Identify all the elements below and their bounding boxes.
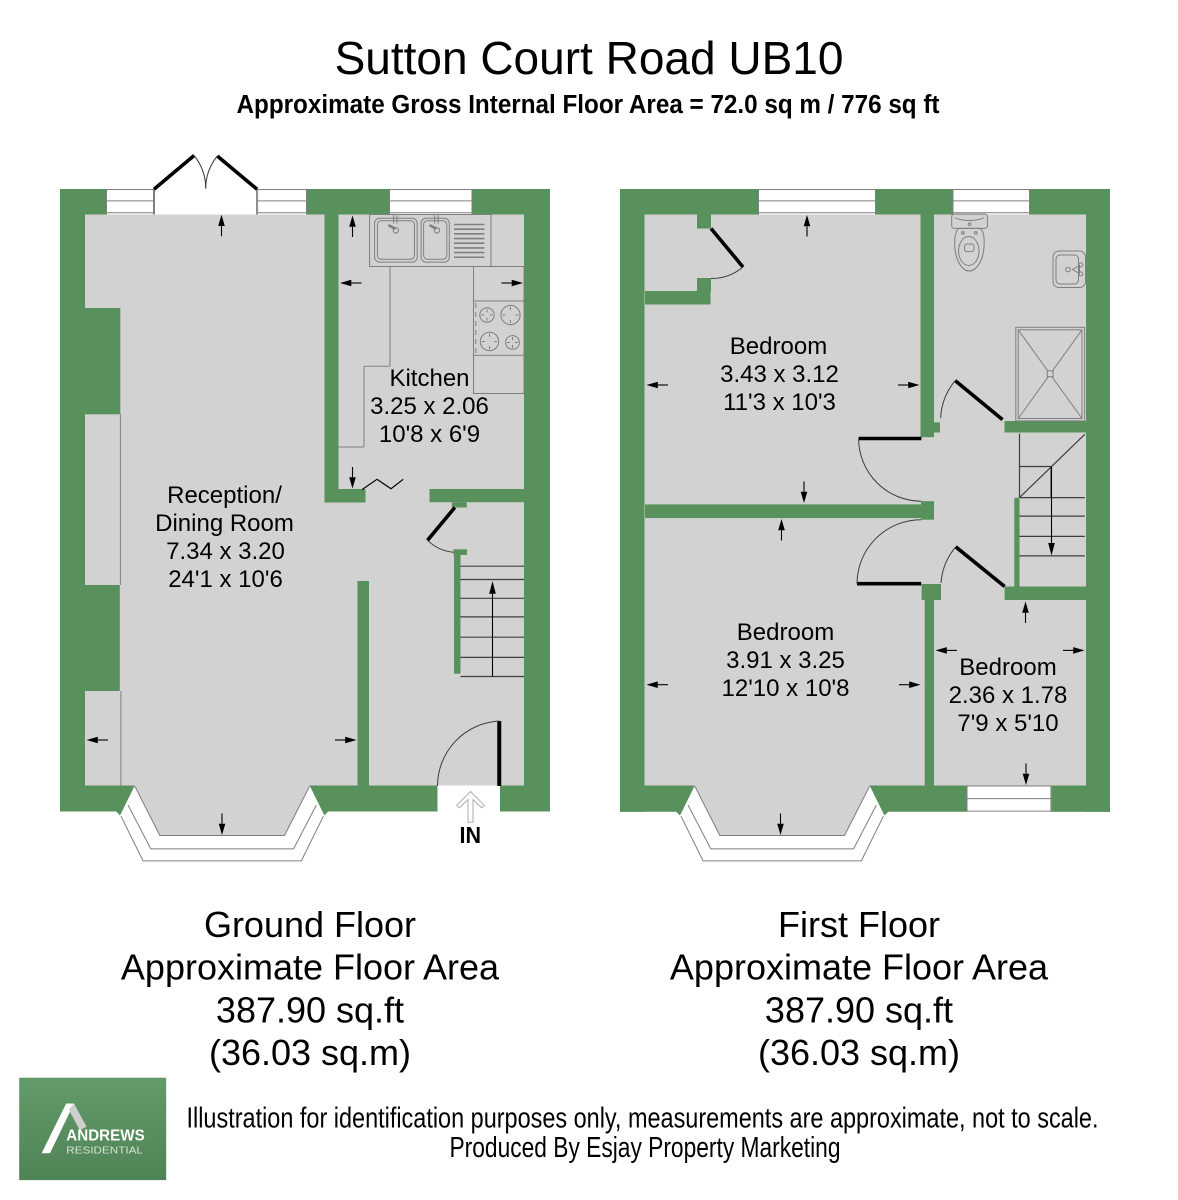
svg-text:(36.03 sq.m): (36.03 sq.m) [209, 1032, 411, 1073]
svg-text:IN: IN [460, 822, 482, 848]
svg-text:3.43 x 3.12: 3.43 x 3.12 [720, 361, 839, 388]
svg-text:Approximate Floor Area: Approximate Floor Area [670, 947, 1049, 988]
svg-text:Ground Floor: Ground Floor [204, 904, 416, 945]
svg-text:(36.03 sq.m): (36.03 sq.m) [758, 1032, 960, 1073]
svg-text:11'3 x 10'3: 11'3 x 10'3 [723, 389, 836, 416]
svg-text:Approximate Gross Internal Flo: Approximate Gross Internal Floor Area = … [237, 91, 940, 119]
svg-text:Reception/: Reception/ [167, 482, 282, 509]
svg-text:Dining Room: Dining Room [155, 510, 294, 537]
svg-text:24'1 x 10'6: 24'1 x 10'6 [168, 566, 283, 593]
svg-text:Approximate Floor Area: Approximate Floor Area [121, 947, 500, 988]
svg-text:Bedroom: Bedroom [737, 619, 834, 646]
svg-text:12'10 x 10'8: 12'10 x 10'8 [722, 675, 850, 702]
svg-text:Bedroom: Bedroom [959, 654, 1056, 681]
svg-text:7'9 x 5'10: 7'9 x 5'10 [957, 710, 1058, 737]
svg-text:3.91 x 3.25: 3.91 x 3.25 [726, 647, 845, 674]
svg-text:10'8 x 6'9: 10'8 x 6'9 [379, 421, 480, 448]
svg-text:3.25 x 2.06: 3.25 x 2.06 [370, 393, 489, 420]
svg-text:Produced By Esjay Property Mar: Produced By Esjay Property Marketing [450, 1132, 841, 1164]
svg-text:387.90 sq.ft: 387.90 sq.ft [765, 989, 953, 1030]
svg-text:First Floor: First Floor [778, 904, 940, 945]
svg-text:2.36 x 1.78: 2.36 x 1.78 [949, 682, 1068, 709]
svg-text:Sutton Court Road UB10: Sutton Court Road UB10 [335, 32, 844, 84]
svg-text:ANDREWS: ANDREWS [66, 1127, 144, 1144]
svg-text:Illustration for identificatio: Illustration for identification purposes… [187, 1102, 1099, 1134]
svg-text:7.34 x 3.20: 7.34 x 3.20 [166, 538, 285, 565]
svg-text:Kitchen: Kitchen [389, 365, 469, 392]
svg-text:387.90 sq.ft: 387.90 sq.ft [216, 989, 404, 1030]
svg-text:Bedroom: Bedroom [730, 333, 827, 360]
svg-text:RESIDENTIAL: RESIDENTIAL [66, 1145, 143, 1156]
